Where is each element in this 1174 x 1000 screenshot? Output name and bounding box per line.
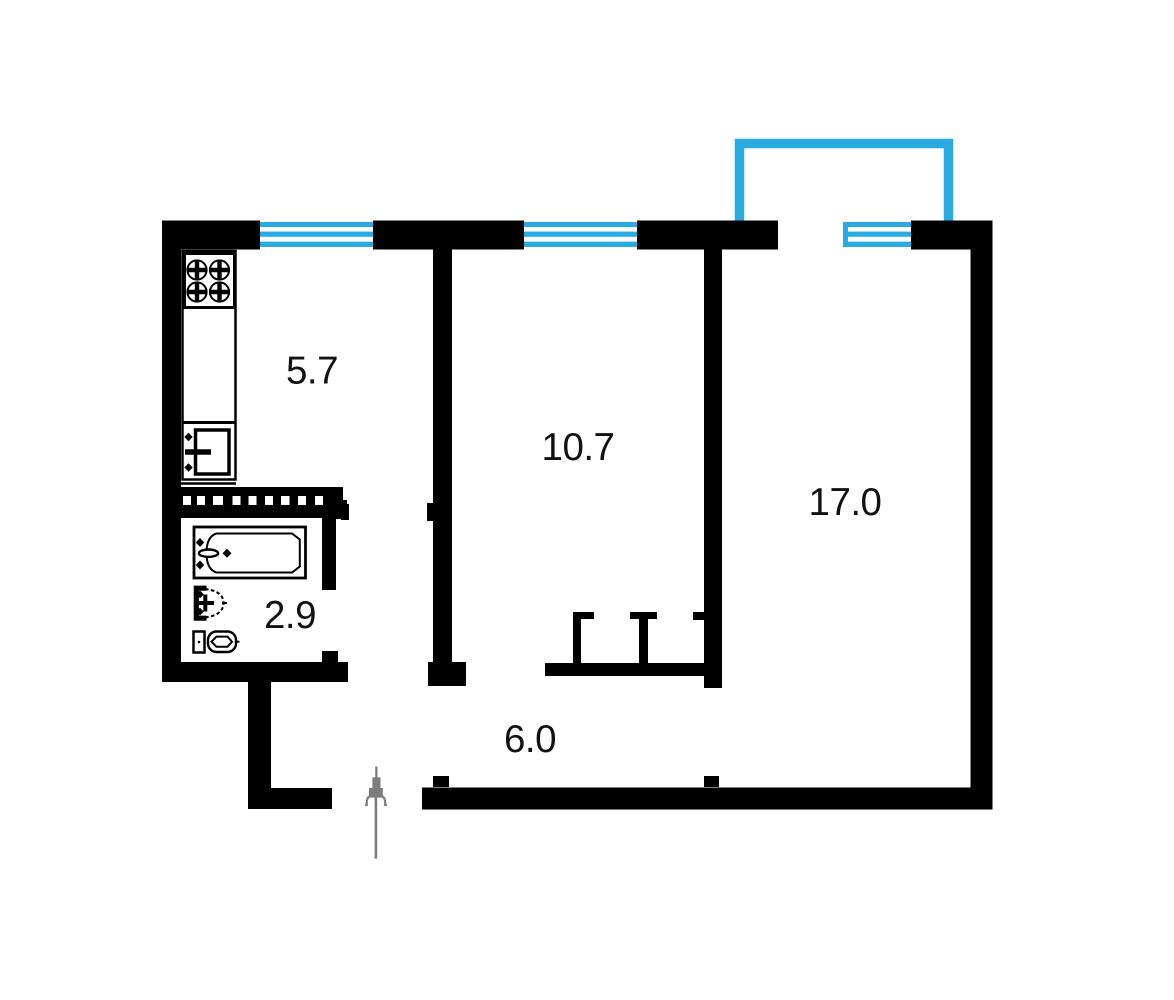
svg-text:10.7: 10.7	[542, 426, 615, 469]
svg-text:17.0: 17.0	[809, 481, 882, 524]
svg-text:6.0: 6.0	[504, 718, 556, 761]
svg-text:5.7: 5.7	[286, 350, 338, 393]
svg-text:2.9: 2.9	[264, 594, 316, 637]
